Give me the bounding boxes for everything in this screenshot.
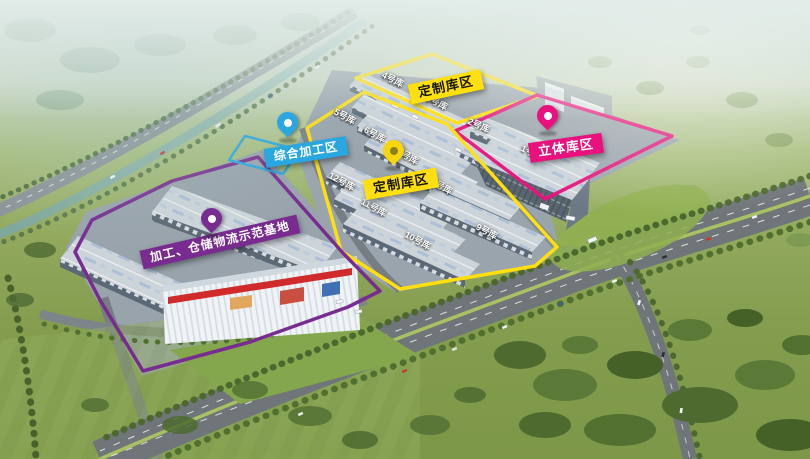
- blue-map-pin-icon: [276, 112, 300, 143]
- aerial-masterplan-render: 1号库2号库3号库4号库5号库6号库7号库8号库9号库10号库11号库12号库 …: [0, 0, 810, 459]
- magenta-map-pin-icon: [536, 105, 560, 136]
- yellow-map-pin-icon: [382, 140, 406, 171]
- scenery-graphics: [0, 0, 810, 459]
- purple-map-pin-icon: [200, 208, 224, 239]
